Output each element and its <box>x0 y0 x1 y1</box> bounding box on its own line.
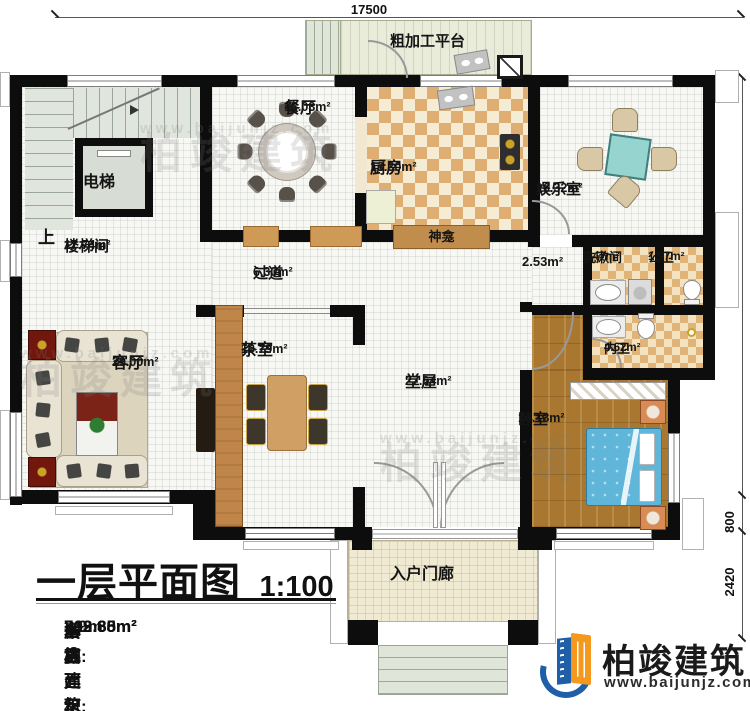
elevator-door-icon <box>97 150 131 157</box>
dimension-right-step: 800 <box>722 492 738 552</box>
exterior-ledge <box>0 72 10 107</box>
entertainment-chair <box>651 147 677 171</box>
tea-chair <box>246 384 266 411</box>
nightstand <box>640 506 666 530</box>
title-stats: 本层建筑面积: 203.80m² 本栋建筑面积: 769.68m² 占地面积: … <box>64 608 394 703</box>
exterior-ledge <box>715 212 739 308</box>
porch-pier <box>508 620 538 645</box>
kitchen-pass-through <box>355 117 367 193</box>
window-sill <box>243 541 339 550</box>
cabinet <box>310 226 362 247</box>
nightstand <box>640 400 666 424</box>
title-rule <box>36 598 336 601</box>
blanket-fold <box>621 429 639 505</box>
window <box>58 491 170 503</box>
window-sill <box>55 506 173 515</box>
brand-logo: 柏竣建筑 www.baijunjz.com <box>537 628 747 703</box>
dimension-line-right <box>742 78 743 640</box>
exterior-ledge <box>0 240 10 282</box>
porch-steps <box>378 645 508 695</box>
logo-building-blue-icon <box>557 637 571 684</box>
sink-icon <box>596 319 621 335</box>
wall <box>353 487 365 527</box>
window <box>568 75 673 87</box>
sofa-cushion <box>66 463 82 479</box>
mahjong-table <box>604 133 651 180</box>
stair-flight-left <box>25 88 73 230</box>
sofa <box>56 455 148 487</box>
stove-icon <box>500 134 520 170</box>
wall <box>352 527 372 550</box>
tea-chair <box>308 384 328 411</box>
floor-plan: 17500 10700 800 2420 电梯 <box>0 0 750 711</box>
wardrobe <box>570 382 666 400</box>
tv-feature-wall <box>215 305 243 527</box>
window <box>245 528 335 539</box>
window <box>10 412 22 497</box>
window <box>668 433 680 503</box>
title-block: 一层平面图 1:100 <box>36 550 336 600</box>
flue-column <box>497 55 523 79</box>
exterior-ledge <box>0 410 10 500</box>
side-table <box>28 457 56 487</box>
wall <box>703 75 715 380</box>
pillow <box>639 433 655 465</box>
wall-opening <box>244 308 330 314</box>
dimension-top-value: 17500 <box>329 2 409 17</box>
tea-chair <box>246 418 266 445</box>
cabinet <box>243 226 279 247</box>
exterior-ledge <box>715 70 739 103</box>
window <box>67 75 162 87</box>
wall <box>583 368 715 380</box>
logo-building-orange-icon <box>571 633 591 685</box>
wall <box>520 302 532 312</box>
dining-chair <box>279 187 295 202</box>
shower-drain-icon <box>687 328 696 337</box>
window <box>10 243 22 277</box>
stair-direction-arrow <box>130 105 139 115</box>
window <box>237 75 335 87</box>
entertainment-chair <box>612 108 638 132</box>
dimension-right-porch: 2420 <box>722 552 738 612</box>
washing-machine-icon <box>628 279 652 305</box>
sink-icon <box>595 284 621 301</box>
sofa-cushion <box>96 463 112 479</box>
wall <box>572 235 715 247</box>
wall <box>353 305 365 345</box>
sofa-cushion <box>35 432 51 448</box>
brand-url: www.baijunjz.com <box>604 674 747 694</box>
brand-name: 柏竣建筑 <box>602 634 747 674</box>
window <box>556 528 652 539</box>
shrine-label: 神龛 <box>428 229 454 244</box>
window <box>420 75 502 87</box>
pillow <box>639 470 655 502</box>
sofa-cushion <box>124 463 139 478</box>
entry-threshold <box>372 529 518 539</box>
title-rule-thin <box>36 603 336 604</box>
exterior-steps <box>305 20 341 75</box>
tea-table <box>267 375 307 451</box>
exterior-ledge <box>682 498 704 550</box>
dimension-line-top <box>55 17 743 18</box>
kitchen-cabinet <box>366 190 396 224</box>
tea-chair <box>308 418 328 445</box>
entertainment-chair <box>577 147 603 171</box>
shrine-cabinet: 神龛 <box>393 225 490 249</box>
window-sill <box>554 541 654 550</box>
bed <box>586 428 662 506</box>
